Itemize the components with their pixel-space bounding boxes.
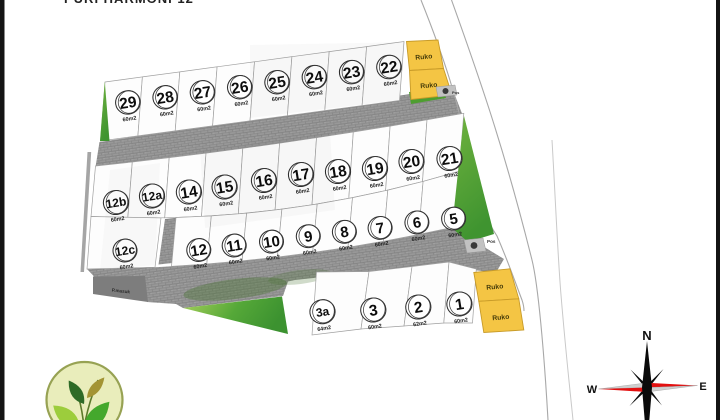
- svg-text:W: W: [587, 384, 598, 396]
- svg-text:11: 11: [225, 237, 243, 256]
- svg-text:29: 29: [118, 94, 138, 114]
- svg-text:E: E: [699, 381, 706, 393]
- svg-text:19: 19: [365, 160, 385, 180]
- svg-text:Pos: Pos: [487, 239, 496, 244]
- svg-text:Ruko: Ruko: [415, 53, 433, 61]
- svg-text:14: 14: [179, 183, 199, 203]
- svg-text:10: 10: [262, 233, 281, 252]
- svg-text:20: 20: [402, 153, 422, 172]
- svg-text:Ruko: Ruko: [420, 82, 438, 90]
- svg-text:21: 21: [440, 150, 460, 170]
- svg-text:12: 12: [189, 241, 208, 260]
- svg-text:Ruko: Ruko: [492, 314, 510, 322]
- svg-text:27: 27: [193, 84, 213, 103]
- svg-text:3a: 3a: [315, 304, 331, 320]
- svg-text:N: N: [642, 328, 651, 343]
- svg-text:28: 28: [156, 88, 176, 108]
- svg-text:PURI HARMONI 12: PURI HARMONI 12: [64, 0, 194, 6]
- svg-text:Ruko: Ruko: [486, 283, 504, 291]
- svg-text:26: 26: [230, 78, 250, 98]
- svg-text:Pos: Pos: [452, 90, 460, 95]
